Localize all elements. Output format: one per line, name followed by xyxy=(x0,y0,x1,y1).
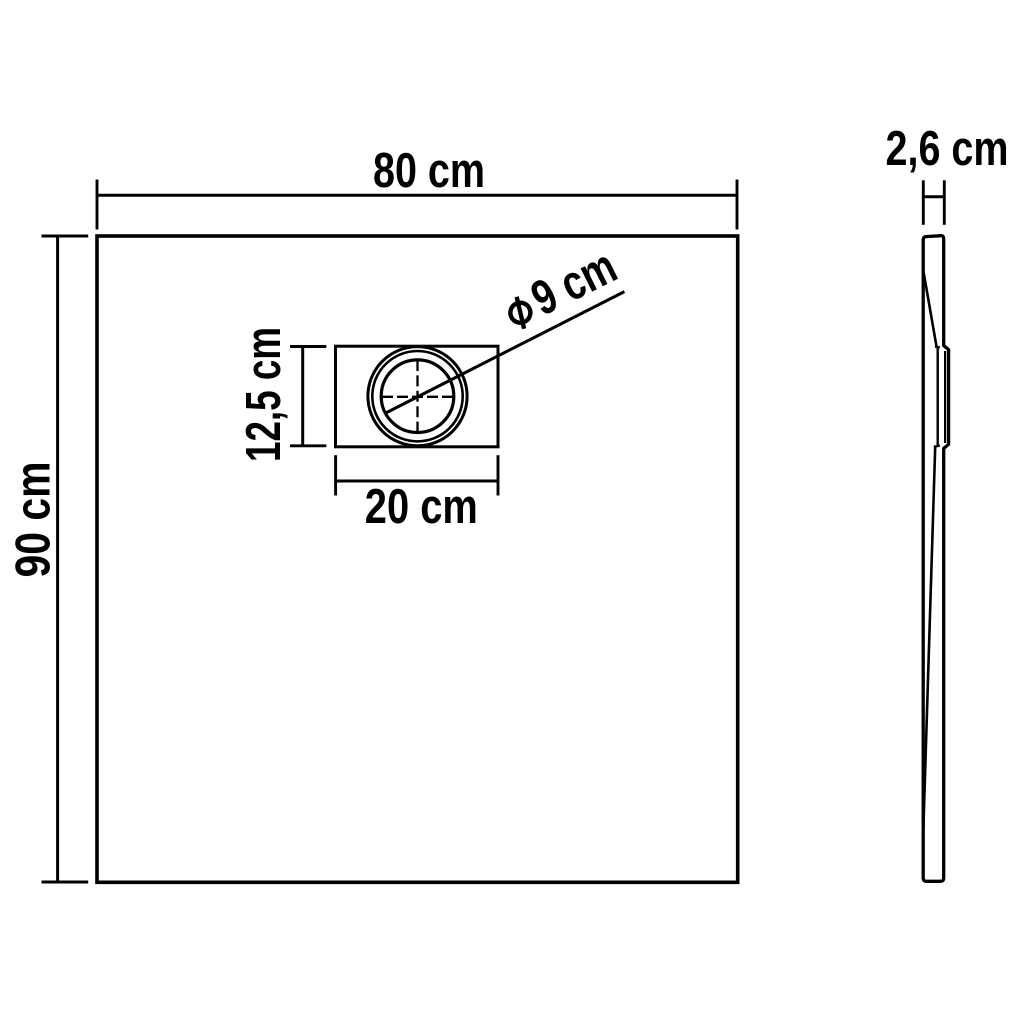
svg-text:2,6 cm: 2,6 cm xyxy=(886,122,1009,176)
svg-text:9 cm: 9 cm xyxy=(523,239,625,326)
svg-text:12,5 cm: 12,5 cm xyxy=(237,327,291,462)
svg-text:90 cm: 90 cm xyxy=(7,462,61,578)
svg-text:80 cm: 80 cm xyxy=(373,144,485,198)
svg-text:20 cm: 20 cm xyxy=(365,480,478,534)
